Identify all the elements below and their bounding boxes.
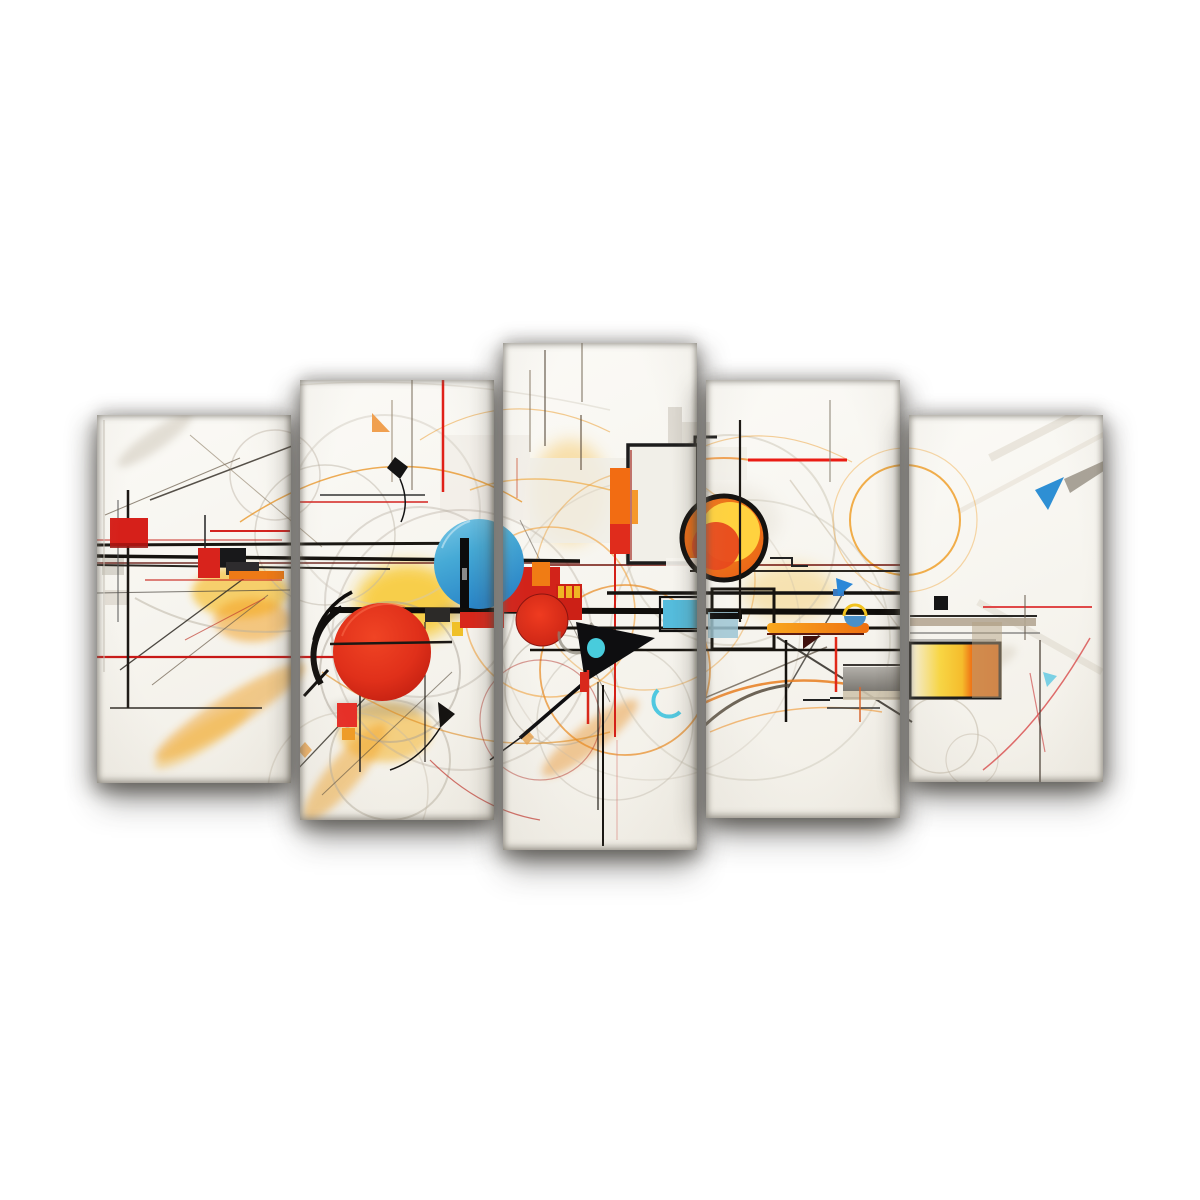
- canvas-panel-1: [97, 415, 291, 783]
- cyan-dot: [587, 638, 605, 658]
- artwork-svg: [706, 380, 900, 818]
- soft-color-washes: [112, 415, 291, 783]
- canvas-panel-4: [706, 380, 900, 818]
- product-photo: [0, 0, 1200, 1200]
- cyan-triangle: [1043, 672, 1057, 687]
- canvas-panel-2: [300, 380, 494, 820]
- black-square: [934, 596, 948, 610]
- artwork-slice: [909, 415, 1103, 782]
- sketch-arcs: [909, 415, 998, 782]
- black-kite: [387, 457, 408, 479]
- cyan-crescent: [653, 690, 680, 717]
- artwork-svg: [97, 415, 291, 783]
- artwork-slice: [503, 343, 697, 850]
- gray-block: [843, 667, 900, 691]
- canvas-panel-5: [909, 415, 1103, 782]
- color-shapes: [909, 415, 1103, 770]
- cyan-rectangle: [663, 600, 697, 628]
- artwork-svg: [503, 343, 697, 850]
- red-square: [110, 518, 148, 546]
- canvas-panel-3: [503, 343, 697, 850]
- artwork-slice: [706, 380, 900, 818]
- artwork-slice: [97, 415, 291, 783]
- red-circle-large: [333, 603, 431, 701]
- artwork-slice: [300, 380, 494, 820]
- blue-triangle-large: [1035, 477, 1064, 510]
- artwork-svg: [300, 380, 494, 820]
- artwork-svg: [909, 415, 1103, 782]
- orange-column: [610, 468, 630, 524]
